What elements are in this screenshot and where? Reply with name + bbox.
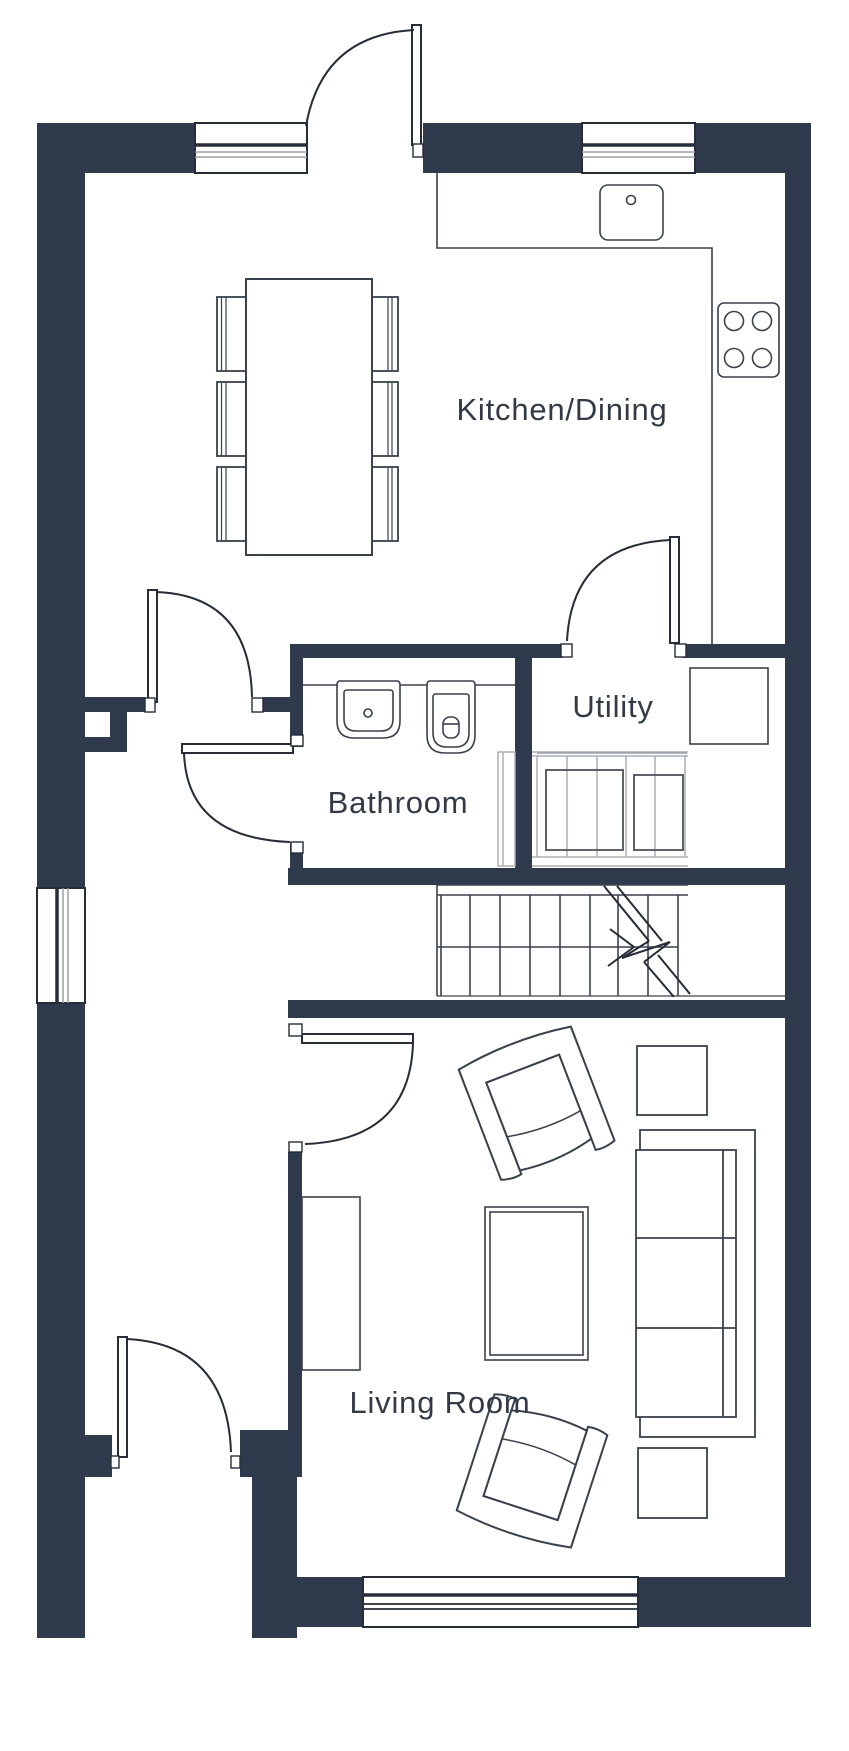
room-label-bathroom: Bathroom xyxy=(328,785,469,820)
wall-stairs-north xyxy=(288,868,785,885)
washing-machine xyxy=(634,775,683,850)
bathroom-fittings xyxy=(303,681,515,866)
wall-bathroom-west-upper xyxy=(290,644,303,747)
bathroom-basin xyxy=(337,681,400,738)
toilet-flush-icon xyxy=(443,717,459,738)
wall-bottom-left xyxy=(297,1577,363,1627)
floor-plan-canvas: Kitchen/Dining Bathroom Utility Living R… xyxy=(0,0,849,1751)
wall-living-north xyxy=(288,1000,785,1018)
door-utility xyxy=(561,537,686,657)
wall-left-upper xyxy=(37,123,85,888)
door-bathroom xyxy=(182,735,303,853)
living-room-furniture xyxy=(302,1022,755,1552)
door-kitchen-hall xyxy=(145,590,263,712)
stairs-up-arrow-icon xyxy=(604,886,690,997)
sofa xyxy=(636,1130,755,1437)
bathroom-cupboard xyxy=(498,752,515,866)
dining-chair xyxy=(217,297,246,371)
wall-bathroom-utility-divider xyxy=(515,658,532,868)
doors xyxy=(111,25,686,1468)
window-top-right xyxy=(582,123,695,173)
wall-top-mid xyxy=(423,123,582,173)
dining-table xyxy=(246,279,372,555)
wall-living-west xyxy=(288,1152,302,1430)
window-bottom xyxy=(363,1577,638,1627)
dining-chair xyxy=(217,467,246,541)
door-front-entrance xyxy=(111,1337,240,1468)
washing-machine xyxy=(546,770,623,850)
utility-worktop xyxy=(532,752,688,866)
floor-plan: Kitchen/Dining Bathroom Utility Living R… xyxy=(0,0,849,1751)
dining-chair xyxy=(217,382,246,456)
wall-bathroom-utility-north xyxy=(290,644,563,658)
coffee-table xyxy=(485,1207,588,1360)
window-left xyxy=(37,888,85,1003)
bathroom-toilet xyxy=(427,681,475,753)
window-top-left xyxy=(195,123,307,173)
staircase xyxy=(437,885,785,997)
wall-entrance-west-stub xyxy=(85,1435,112,1477)
side-table xyxy=(638,1448,707,1518)
armchair xyxy=(457,1022,615,1186)
basin-tap-icon xyxy=(364,709,372,717)
room-label-kitchen-dining: Kitchen/Dining xyxy=(456,392,667,427)
wall-right xyxy=(785,123,811,1627)
wall-utility-north-right xyxy=(683,644,785,658)
room-label-utility: Utility xyxy=(572,689,653,724)
wall-hall-niche-bottom xyxy=(85,737,127,752)
tv-unit xyxy=(302,1197,360,1370)
wall-entrance-east-upper xyxy=(240,1430,302,1477)
door-living-room xyxy=(289,1024,413,1152)
side-table xyxy=(637,1046,707,1115)
dining-chair xyxy=(372,297,398,371)
wall-left-lower xyxy=(37,1003,85,1638)
room-label-living-room: Living Room xyxy=(349,1385,530,1420)
dining-chair xyxy=(372,467,398,541)
utility-appliance-cupboard xyxy=(690,668,768,744)
wall-bottom-right xyxy=(638,1577,810,1627)
dining-chair xyxy=(372,382,398,456)
wall-porch-east xyxy=(252,1477,297,1638)
dining-set xyxy=(217,279,398,555)
kitchen-sink xyxy=(600,185,663,240)
door-kitchen-external xyxy=(306,25,423,157)
kitchen-hob xyxy=(718,303,779,377)
wall-kitchen-south-left xyxy=(85,697,145,712)
